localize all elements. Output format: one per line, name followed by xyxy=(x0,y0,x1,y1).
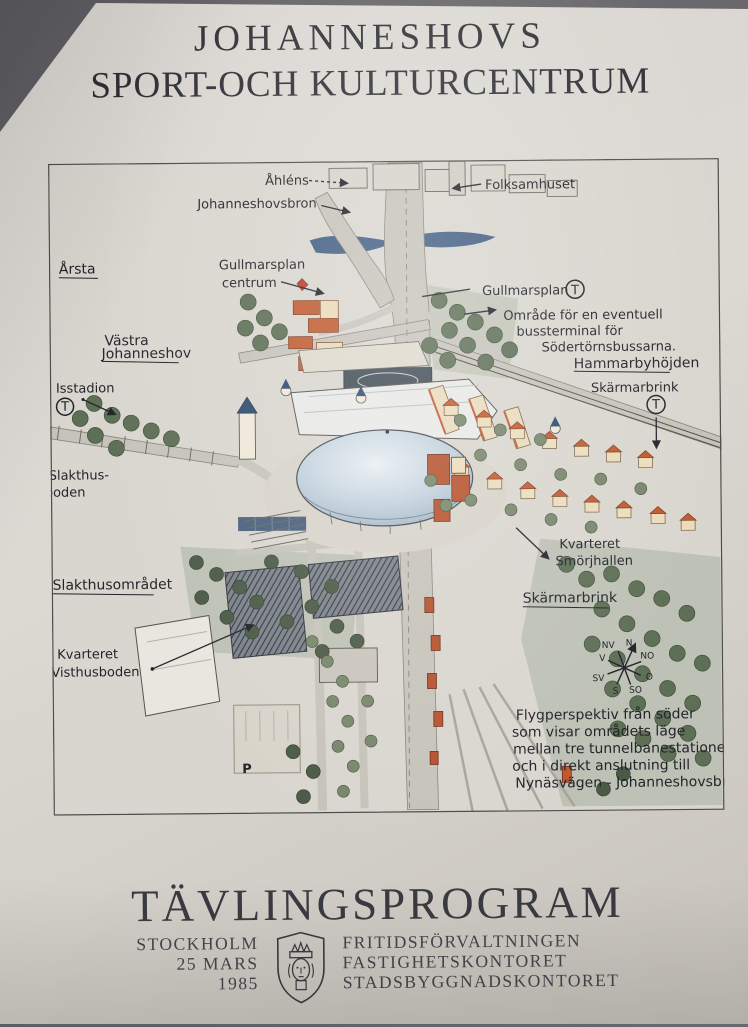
compass-s: S xyxy=(613,687,619,697)
poster-title-line1: JOHANNESHOVS xyxy=(0,13,744,63)
label-visthusboden-1: Kvarteret xyxy=(57,647,118,663)
program-title: TÄVLINGSPROGRAM xyxy=(3,875,748,934)
compass-n: N xyxy=(626,639,633,649)
compass-so: SO xyxy=(629,686,642,696)
credits-place: STOCKHOLM xyxy=(136,933,258,954)
compass-o: O xyxy=(646,673,653,683)
caption-line-2: som visar områdets läge xyxy=(512,722,686,741)
compass-nv: NV xyxy=(602,641,616,651)
caption-line-3: mellan tre tunnelbanestationer xyxy=(513,740,725,758)
label-visthusboden-2: Visthusboden xyxy=(51,665,139,681)
poster-title-line2: SPORT-OCH KULTURCENTRUM xyxy=(0,59,744,109)
map-panel: P Åhlé xyxy=(48,158,725,816)
label-isstadion: Isstadion xyxy=(56,381,115,397)
label-slakthusboden-2: boden xyxy=(48,486,86,501)
label-slakthusboden-1: Slakthus- xyxy=(49,468,110,484)
credits-organizations: FRITIDSFÖRVALTNINGEN FASTIGHETSKONTORET … xyxy=(342,927,619,1005)
map-caption: Flygperspektiv från söder som visar områ… xyxy=(512,705,725,792)
label-ahlens: Åhléns xyxy=(265,173,309,189)
label-vastra-2: Johanneshov xyxy=(101,346,192,363)
stockholm-coat-of-arms-icon xyxy=(273,929,328,1005)
label-gullmarsplan-centrum-1: Gullmarsplan xyxy=(219,258,305,274)
credits-date: 25 MARS xyxy=(136,953,258,974)
label-skarmarbrink-ne: Skärmarbrink xyxy=(591,380,679,396)
label-arsta: Årsta xyxy=(59,260,96,277)
credits-org-1: FRITIDSFÖRVALTNINGEN xyxy=(342,930,619,952)
label-folksamhuset: Folksamhuset xyxy=(485,177,575,193)
credits-place-date: STOCKHOLM 25 MARS 1985 xyxy=(136,930,259,1007)
compass-sv: SV xyxy=(592,674,605,684)
credits-org-2: FASTIGHETSKONTORET xyxy=(343,950,620,972)
caption-line-4: och i direkt anslutning till xyxy=(512,757,690,775)
credits-block: STOCKHOLM 25 MARS 1985 FRITIDSFÖRVALTNIN… xyxy=(4,926,748,1009)
label-smorjhallen-2: Smörjhallen xyxy=(555,554,633,570)
caption-line-5: Nynäsvägen - Johanneshovsbron. xyxy=(515,774,724,792)
label-slakthusomradet: Slakthusområdet xyxy=(53,576,173,594)
label-bussterminal-3: Södertörnsbussarna. xyxy=(542,339,677,355)
compass-v: V xyxy=(599,654,606,664)
label-hammarbyhojden: Hammarbyhöjden xyxy=(574,355,700,372)
label-johanneshovsbron: Johanneshovsbron xyxy=(196,196,317,212)
compass-no: NO xyxy=(640,652,654,662)
credits-org-3: STADSBYGGNADSKONTORET xyxy=(343,970,620,992)
label-bussterminal-2: bussterminal för xyxy=(516,324,623,340)
label-gullmarsplan-t: Gullmarsplan xyxy=(482,283,568,299)
folksam-tower xyxy=(449,161,465,195)
label-gullmarsplan-centrum-2: centrum xyxy=(222,276,277,291)
poster-content: JOHANNESHOVS SPORT-OCH KULTURCENTRUM xyxy=(0,0,748,1027)
label-skarmarbrink-se: Skärmarbrink xyxy=(523,590,618,607)
svg-text:T: T xyxy=(60,400,69,415)
svg-text:T: T xyxy=(651,397,660,412)
credits-year: 1985 xyxy=(137,973,259,994)
map-illustration: P Åhlé xyxy=(48,158,725,816)
parking-symbol: P xyxy=(242,762,252,777)
caption-line-1: Flygperspektiv från söder xyxy=(516,705,695,724)
label-bussterminal-1: Område för en eventuell xyxy=(503,307,663,323)
svg-text:T: T xyxy=(570,283,579,298)
label-smorjhallen-1: Kvarteret xyxy=(559,537,620,553)
